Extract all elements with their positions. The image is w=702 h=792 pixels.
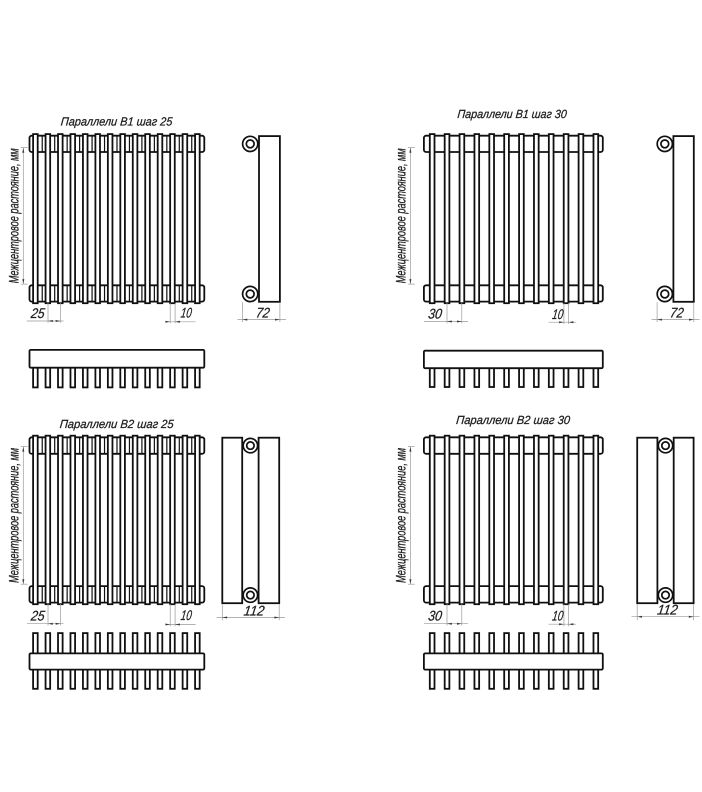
svg-text:25: 25 — [29, 607, 46, 623]
svg-text:Параллели В1 шаг 30: Параллели В1 шаг 30 — [457, 107, 568, 121]
svg-text:Параллели В2 шаг 25: Параллели В2 шаг 25 — [59, 417, 175, 431]
svg-text:72: 72 — [255, 305, 271, 321]
svg-text:Межцентровое растояние, мм: Межцентровое растояние, мм — [6, 148, 22, 283]
svg-text:112: 112 — [656, 602, 679, 618]
svg-text:30: 30 — [427, 607, 443, 623]
svg-text:30: 30 — [427, 305, 443, 321]
svg-text:Межцентровое растояние, мм: Межцентровое растояние, мм — [393, 148, 409, 283]
svg-text:Параллели В1 шаг 25: Параллели В1 шаг 25 — [60, 115, 173, 129]
svg-text:25: 25 — [29, 305, 46, 321]
svg-text:72: 72 — [669, 305, 685, 321]
svg-text:112: 112 — [243, 602, 266, 618]
svg-text:Параллели В2 шаг 30: Параллели В2 шаг 30 — [456, 413, 572, 427]
svg-text:Межцентровое растояние, мм: Межцентровое растояние, мм — [6, 448, 22, 583]
svg-text:Межцентровое растояние, мм: Межцентровое растояние, мм — [393, 448, 409, 583]
